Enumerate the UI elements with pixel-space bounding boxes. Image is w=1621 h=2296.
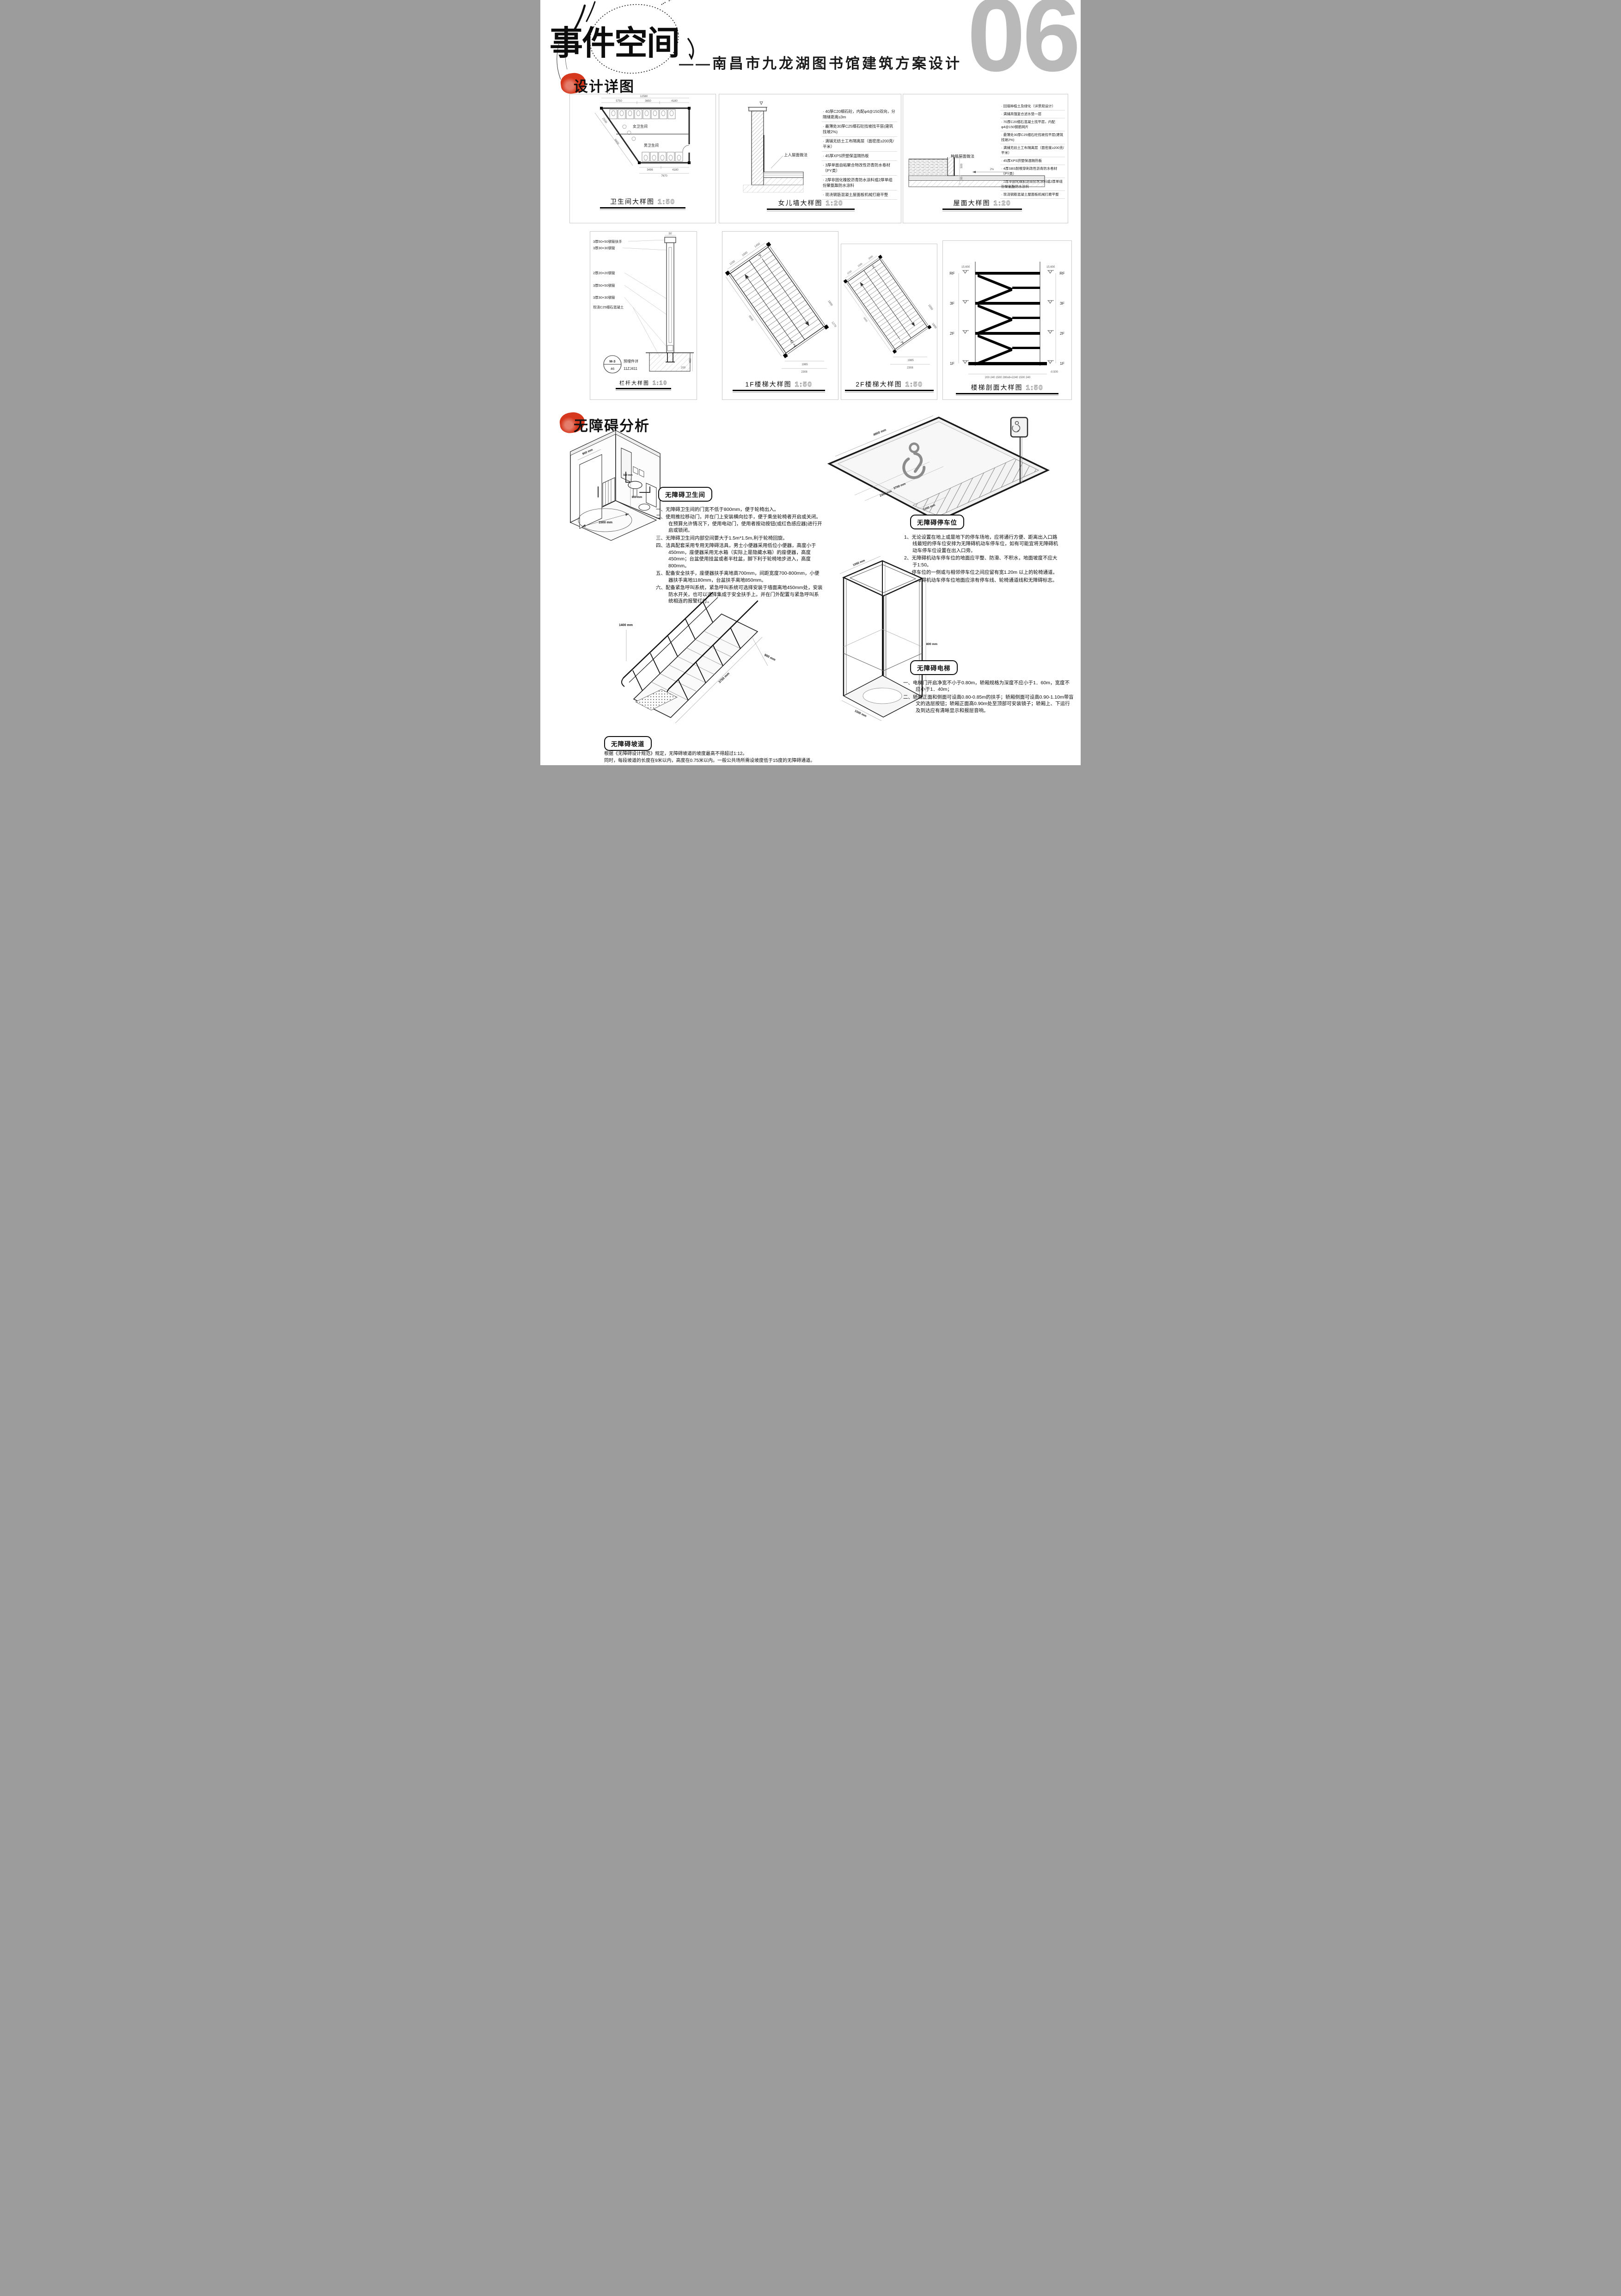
section-details-header: 设计详图: [540, 73, 771, 93]
svg-text:1270: 1270: [831, 321, 837, 328]
svg-text:3400: 3400: [748, 314, 754, 321]
caption-toilet-plan: 卫生间大样图1:50: [600, 197, 685, 210]
svg-text:46: 46: [611, 367, 614, 371]
svg-text:2000: 2000: [868, 255, 874, 261]
note-item: 70厚C20细石混凝土找平层，内配φ4@150钢筋网片: [1000, 118, 1065, 131]
svg-text:-0.500: -0.500: [1050, 371, 1058, 374]
panel-stair-section: RF 3F 2F 1F RF 3F 2F 1F 15.600 15.600 -0…: [942, 240, 1072, 400]
list-item: 五、配备安全扶手，座便器扶手离地高700mm，间距宽度700-800mm，小便器…: [656, 570, 823, 583]
accessible-elevator-label: 无障碍电梯: [910, 660, 958, 675]
note-item: 最薄处30厚C25细石砼找坡找平层(建筑找坡2%): [1000, 131, 1065, 144]
svg-text:1985: 1985: [801, 363, 808, 366]
svg-text:7670: 7670: [661, 175, 667, 178]
note-item: 满铺无纺土工布隔离层（面密度≥200克/平米）: [1000, 144, 1065, 157]
accessible-ramp-isometric: 1400 mm 900 mm 3750 mm: [605, 587, 795, 731]
accessible-ramp-text: 根据《无障碍设计规范》规定，无障碍坡道的坡度最高不得超过1:12。 同时，每段坡…: [604, 751, 891, 764]
svg-text:4900 mm: 4900 mm: [873, 429, 887, 437]
svg-text:12580: 12580: [640, 95, 648, 98]
svg-text:4180: 4180: [672, 169, 679, 172]
accessible-parking-isometric: 4900 mm 3700 mm 2400 mm 1000 mm: [822, 414, 1053, 525]
svg-text:1150: 1150: [729, 260, 736, 266]
svg-text:200 240 1500 280x8=2240 150: 200 240 1500 280x8=2240 1500 240: [985, 376, 1031, 379]
accessible-toilet-isometric: 900 mm 320 mm 800 mm 1500 mm: [561, 428, 667, 553]
note-item: 满铺高强复合滤水垫一层: [1000, 111, 1065, 118]
svg-text:1F: 1F: [1060, 361, 1064, 366]
panel-roof-detail: 回填种植土及绿化（详景观设计）满铺高强复合滤水垫一层70厚C20细石混凝土找平层…: [903, 94, 1068, 223]
svg-text:3厚50×50钢管扶手: 3厚50×50钢管扶手: [593, 239, 622, 244]
svg-text:1500 mm: 1500 mm: [854, 709, 867, 718]
svg-text:9400: 9400: [613, 139, 619, 146]
svg-text:2F: 2F: [950, 331, 954, 336]
svg-text:15.600: 15.600: [961, 266, 970, 269]
caption-parapet: 女儿墙大样图1:20: [767, 198, 855, 211]
caption-stair-section: 楼梯剖面大样图1:50: [956, 383, 1058, 396]
svg-text:2308: 2308: [801, 371, 807, 374]
svg-text:3厚50×50钢管: 3厚50×50钢管: [593, 283, 615, 288]
svg-text:预埋件详: 预埋件详: [624, 359, 638, 363]
ramp-text-line: 同时，每段坡道的长度在9米以内，高度在0.75米以内。一般公共场所需设坡度低于1…: [604, 758, 891, 765]
panel-stair-2f: 下 上 1150 1500 2000 3400 1985 2308 1650 1…: [841, 244, 937, 400]
list-item: 三、无障碍卫生间内部空间要大于1.5m*1.5m,利于轮椅回旋。: [656, 535, 823, 541]
ramp-text-line: 根据《无障碍设计规范》规定，无障碍坡道的坡度最高不得超过1:12。: [604, 751, 891, 758]
panel-toilet-plan: 12580 5750 3650 4180: [569, 94, 716, 223]
list-item: 1、无论设置在地上或是地下的停车场地，应将通行方便、距离出入口路线最短的停车位安…: [904, 534, 1061, 554]
svg-text:1985: 1985: [907, 359, 914, 362]
svg-text:3496: 3496: [647, 169, 653, 172]
parapet-notes-list: 40厚C20细石砼，内配φ4@150双向，分隔缝距离≤3m最薄处30厚C25细石…: [822, 107, 897, 200]
svg-text:1650: 1650: [927, 304, 933, 311]
svg-text:女卫生间: 女卫生间: [633, 124, 648, 129]
svg-text:500: 500: [960, 163, 963, 168]
note-item: 2厚非固化橡胶沥青防水涂料或2厚单组份聚氨酯防水涂料: [822, 176, 897, 190]
svg-text:现浇C25细石混凝土: 现浇C25细石混凝土: [593, 305, 624, 309]
svg-text:1800: 1800: [931, 323, 937, 330]
poster-subtitle: ——南昌市九龙湖图书馆建筑方案设计: [679, 52, 962, 73]
svg-text:11ZJ411: 11ZJ411: [624, 367, 637, 371]
svg-text:1050 mm: 1050 mm: [852, 559, 866, 567]
svg-text:1800: 1800: [827, 300, 833, 307]
caption-roof: 屋面大样图1:20: [942, 198, 1022, 211]
svg-text:3厚30×30钢管: 3厚30×30钢管: [593, 246, 615, 250]
svg-text:3厚30×30钢管: 3厚30×30钢管: [593, 295, 615, 300]
svg-text:2F: 2F: [1060, 331, 1064, 336]
panel-parapet-detail: 上人屋面做法 40厚C20细石砼，内配φ4@150双向，分隔缝距离≤3m最薄处3…: [719, 94, 901, 223]
accessible-ramp-label: 无障碍坡道: [604, 736, 652, 751]
svg-text:2308: 2308: [907, 367, 913, 369]
caption-stair-2f: 2F楼梯大样图1:50: [845, 380, 934, 393]
poster-title: 事件空间: [550, 16, 679, 64]
svg-text:3750 mm: 3750 mm: [718, 672, 730, 684]
stair-2f-drawing: 下 上 1150 1500 2000 3400 1985 2308 1650 1…: [841, 244, 937, 378]
toilet-plan-drawing: 12580 5750 3650 4180: [570, 94, 716, 194]
svg-text:900 mm: 900 mm: [764, 654, 776, 662]
svg-text:3F: 3F: [1060, 301, 1064, 306]
svg-text:190: 190: [960, 176, 963, 181]
note-item: 满铺无纺土工布隔离层（面密度≥200克/平米）: [822, 137, 897, 152]
svg-text:50: 50: [669, 233, 672, 235]
svg-text:3F: 3F: [950, 301, 954, 306]
accessible-elevator-list: 一、电梯门开启净宽不小于0.80m，轿厢规格为深度不应小于1．60m，宽度不应小…: [903, 680, 1074, 715]
svg-text:5750: 5750: [616, 100, 622, 103]
note-item: 回填种植土及绿化（详景观设计）: [1000, 103, 1065, 111]
accessible-toilet-label: 无障碍卫生间: [658, 487, 712, 502]
svg-text:2厚20×20钢管: 2厚20×20钢管: [593, 270, 615, 275]
note-item: 40厚C20细石砼，内配φ4@150双向，分隔缝距离≤3m: [822, 107, 897, 122]
svg-text:1F: 1F: [950, 361, 954, 366]
svg-text:3650: 3650: [645, 100, 651, 103]
caption-railing: 栏杆大样图1:10: [616, 379, 671, 391]
note-item: 最薄处30厚C25细石砼找坡找平层(建筑找坡2%): [822, 122, 897, 137]
list-item: 二、轿厢正面和侧面可设高0.80-0.85m的扶手；轿厢侧面可设高0.90-1.…: [903, 694, 1074, 714]
svg-text:1150: 1150: [847, 270, 853, 275]
list-item: 一、电梯门开启净宽不小于0.80m，轿厢规格为深度不应小于1．60m，宽度不应小…: [903, 680, 1074, 693]
accessible-elevator-isometric: 1050 mm 800 mm 1500 mm: [831, 556, 939, 743]
svg-text:800 mm: 800 mm: [926, 643, 937, 646]
svg-text:1500: 1500: [857, 263, 863, 268]
roof-drawing: 100 500 190 2%: [903, 157, 1051, 194]
svg-text:M-3: M-3: [610, 359, 616, 363]
stair-1f-drawing: 上 下 1150 1500 1450 3400 1985 2308 1800 1…: [722, 232, 838, 377]
svg-text:4180: 4180: [671, 100, 678, 103]
note-item: 3厚单面自粘聚合物改性沥青防水卷材（PY类）: [822, 161, 897, 176]
page-number: 06: [967, 0, 1078, 87]
list-item: 四、洁具配套采用专用无障碍洁具，男士小便器采用低位小便器，高度小于450mm，座…: [656, 542, 823, 569]
railing-drawing: 3厚50×50钢管扶手 3厚30×30钢管 2厚20×20钢管 3厚50×50钢…: [590, 232, 697, 377]
svg-text:1500: 1500: [741, 251, 748, 257]
section-details-label: 设计详图: [574, 75, 635, 96]
panel-railing-detail: 3厚50×50钢管扶手 3厚30×30钢管 2厚20×20钢管 3厚50×50钢…: [590, 231, 697, 400]
accessible-parking-label: 无障碍停车位: [910, 515, 964, 529]
caption-stair-1f: 1F楼梯大样图1:50: [733, 380, 825, 393]
svg-text:320 mm: 320 mm: [623, 474, 633, 477]
svg-text:2%: 2%: [990, 168, 994, 171]
parapet-layer-label: 上人屋面做法: [784, 152, 807, 158]
svg-text:450: 450: [689, 358, 692, 363]
svg-text:RF: RF: [1059, 271, 1064, 276]
parapet-drawing: [719, 94, 812, 196]
svg-text:3400: 3400: [863, 316, 869, 322]
note-item: 45厚XPS挤塑保温隔热板: [822, 152, 897, 161]
svg-text:1400 mm: 1400 mm: [619, 624, 633, 627]
svg-text:800 mm: 800 mm: [632, 496, 642, 499]
poster-page: 06 事件空间 ——南昌市九龙湖图书馆建筑方案设计 设计详图 12580 575…: [540, 0, 1081, 765]
list-item: 一、无障碍卫生间的门宽不低于800mm，便于轮椅出入。: [656, 506, 823, 513]
list-item: 二、使用推拉移动门，并在门上安装横向拉手，便于乘坐轮椅者开启或关闭。在预算允许情…: [656, 514, 823, 534]
svg-text:1500 mm: 1500 mm: [599, 521, 612, 524]
svg-text:RF: RF: [949, 271, 954, 276]
stair-section-drawing: RF 3F 2F 1F RF 3F 2F 1F 15.600 15.600 -0…: [943, 241, 1071, 381]
panel-stair-1f: 上 下 1150 1500 1450 3400 1985 2308 1800 1…: [722, 231, 838, 400]
svg-text:男卫生间: 男卫生间: [644, 143, 659, 147]
svg-text:200: 200: [681, 367, 686, 369]
svg-text:15.600: 15.600: [1046, 266, 1055, 269]
svg-text:1450: 1450: [754, 242, 761, 248]
